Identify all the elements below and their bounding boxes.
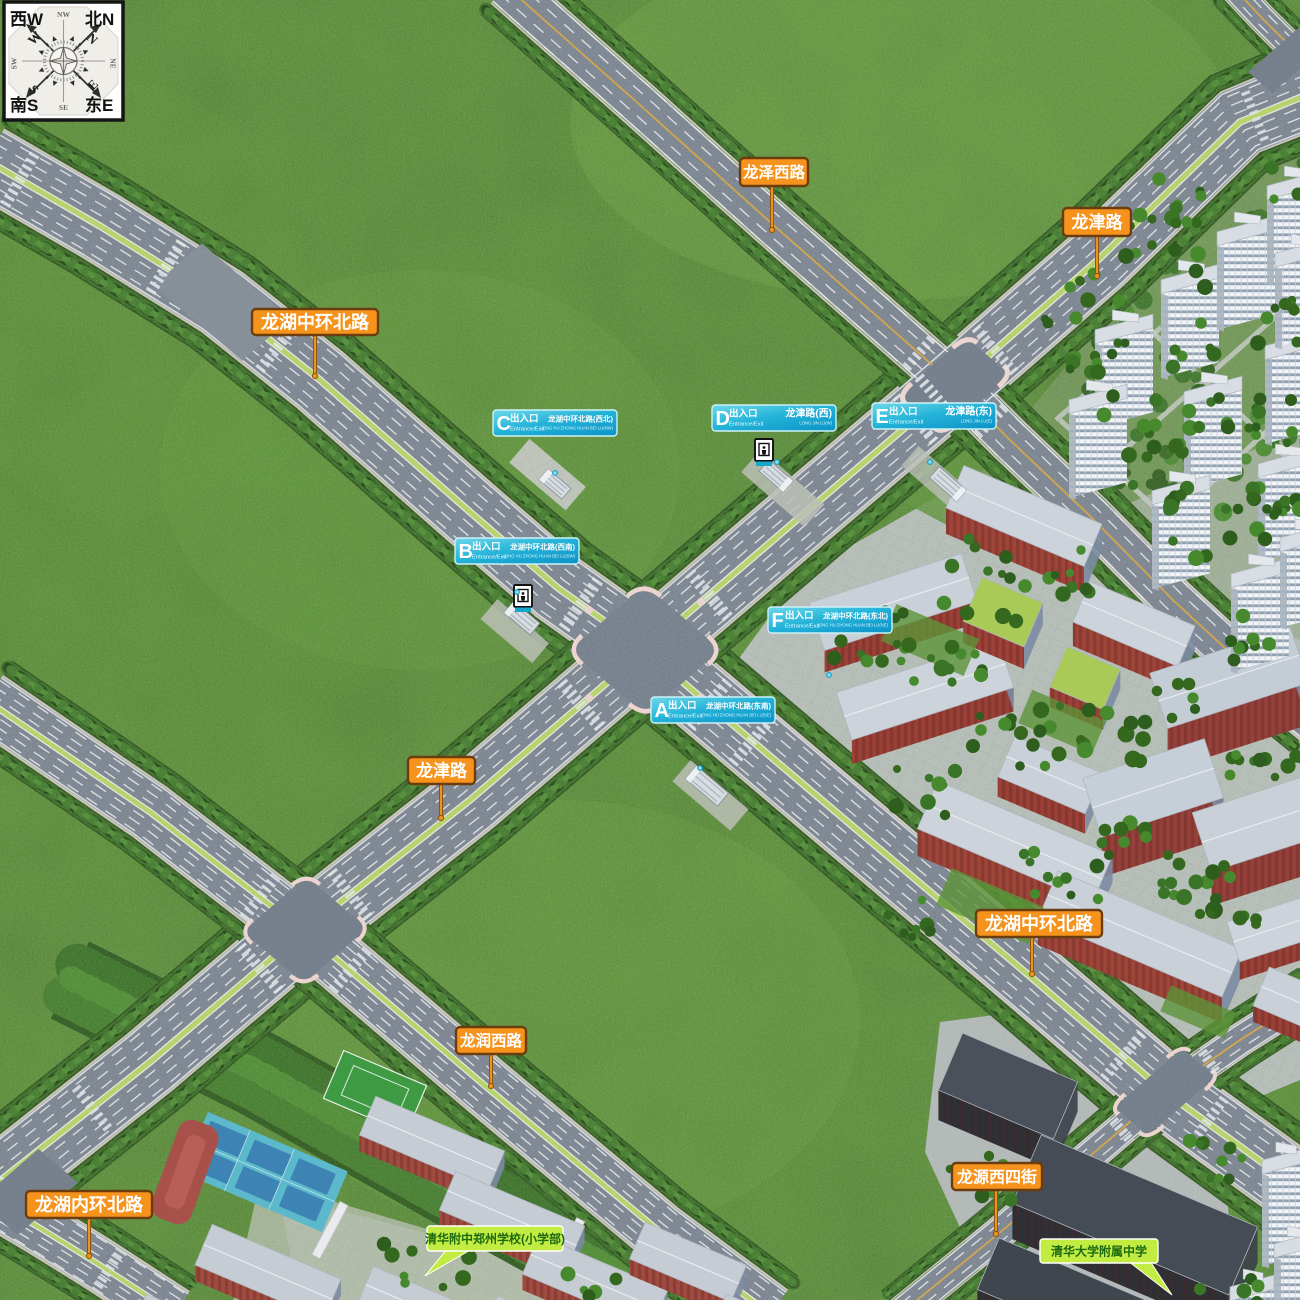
svg-text:Entrance/Exit: Entrance/Exit — [785, 624, 820, 630]
svg-text:LONG HU ZHONG HUAN BEI LU(SW): LONG HU ZHONG HUAN BEI LU(SW) — [503, 554, 576, 559]
svg-text:龙源西四街: 龙源西四街 — [956, 1167, 1037, 1186]
svg-text:东E: 东E — [85, 95, 113, 115]
svg-text:Entrance/Exit: Entrance/Exit — [472, 555, 507, 561]
svg-text:E: E — [876, 406, 889, 428]
svg-text:出入口: 出入口 — [785, 610, 814, 622]
svg-text:C: C — [497, 413, 511, 435]
svg-text:龙泽西路: 龙泽西路 — [742, 163, 806, 182]
svg-text:南S: 南S — [10, 95, 38, 115]
svg-text:清华附中郑州学校(小学部): 清华附中郑州学校(小学部) — [425, 1231, 565, 1246]
svg-text:龙湖中环北路(西北): 龙湖中环北路(西北) — [548, 414, 613, 424]
svg-text:龙湖内环北路: 龙湖内环北路 — [35, 1194, 144, 1215]
svg-text:Entrance/Exit: Entrance/Exit — [668, 714, 703, 720]
svg-text:SE: SE — [59, 103, 68, 112]
svg-text:SW: SW — [10, 57, 19, 69]
svg-text:北N: 北N — [85, 10, 114, 29]
svg-text:出入口: 出入口 — [472, 541, 501, 553]
svg-text:清华大学附属中学: 清华大学附属中学 — [1051, 1244, 1147, 1259]
svg-text:NW: NW — [57, 10, 70, 19]
svg-text:龙湖中环北路: 龙湖中环北路 — [261, 311, 370, 332]
svg-text:B: B — [459, 541, 473, 563]
svg-text:出入口: 出入口 — [729, 408, 758, 420]
svg-text:LONG HU ZHONG HUAN BEI LU(SE): LONG HU ZHONG HUAN BEI LU(SE) — [700, 713, 772, 718]
svg-text:西W: 西W — [10, 10, 44, 29]
svg-text:龙津路: 龙津路 — [1071, 212, 1124, 232]
svg-text:F: F — [772, 610, 784, 632]
svg-text:龙湖中环北路(西南): 龙湖中环北路(西南) — [510, 542, 575, 552]
svg-text:A: A — [655, 700, 669, 722]
svg-text:龙湖中环北路: 龙湖中环北路 — [985, 913, 1094, 934]
svg-text:Entrance/Exit: Entrance/Exit — [889, 420, 924, 426]
svg-text:LONG JIN LU(W): LONG JIN LU(W) — [799, 421, 832, 426]
svg-text:LONG HU ZHONG HUAN BEI LU(NW): LONG HU ZHONG HUAN BEI LU(NW) — [540, 426, 613, 431]
svg-text:龙津路: 龙津路 — [415, 761, 468, 781]
svg-text:Entrance/Exit: Entrance/Exit — [729, 422, 764, 428]
svg-text:LONG JIN LU(E): LONG JIN LU(E) — [961, 419, 993, 424]
svg-text:NE: NE — [109, 58, 118, 68]
svg-text:D: D — [716, 408, 730, 430]
svg-text:出入口: 出入口 — [668, 700, 697, 712]
svg-text:LONG HU ZHONG HUAN BEI LU(NE): LONG HU ZHONG HUAN BEI LU(NE) — [817, 623, 889, 628]
svg-text:龙润西路: 龙润西路 — [459, 1031, 523, 1050]
svg-text:出入口: 出入口 — [510, 413, 539, 425]
svg-text:龙津路(东): 龙津路(东) — [944, 405, 992, 418]
svg-text:龙湖中环北路(东北): 龙湖中环北路(东北) — [823, 611, 888, 621]
svg-text:龙津路(西): 龙津路(西) — [784, 407, 832, 420]
svg-text:龙湖中环北路(东南): 龙湖中环北路(东南) — [706, 701, 771, 711]
svg-text:出入口: 出入口 — [889, 406, 918, 418]
